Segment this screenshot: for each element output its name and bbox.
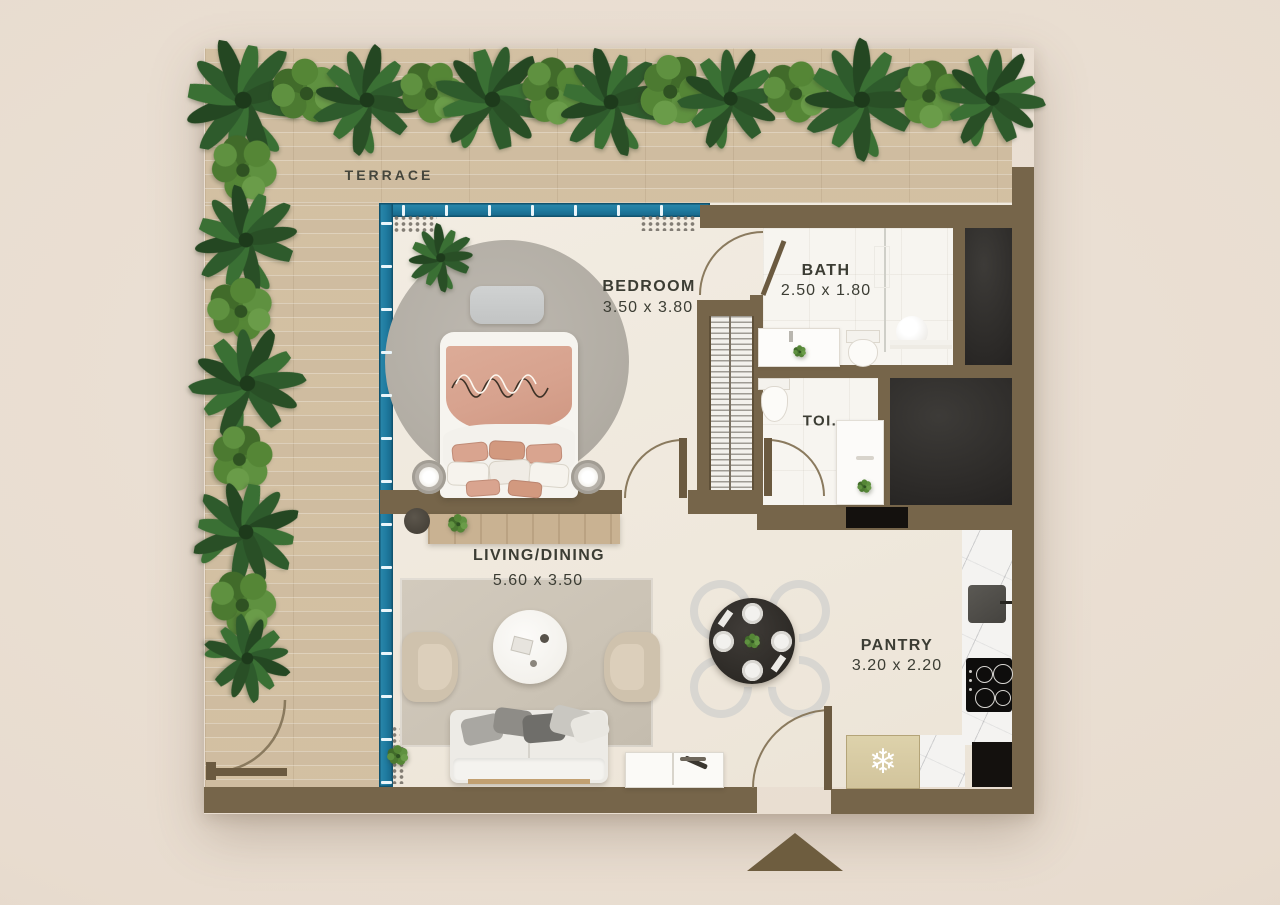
snowflake-icon: ❄ [869,745,898,779]
foot-bench [470,286,544,324]
pillow [507,479,542,498]
wall-niche [846,507,908,528]
pillow [526,443,563,464]
wall-closet-left [697,300,709,490]
tv-console-divider [672,753,674,785]
window-mullion-tick [381,652,392,655]
entrance-arrow-icon [747,833,843,871]
pantry-label: PANTRY [861,637,933,655]
appliance-black-corner [972,742,1012,787]
bath-toilet-bowl [848,339,878,367]
wall-bottom-left [204,787,757,813]
kitchen-sink [968,585,1006,623]
bath-dims: 2.50 x 1.80 [781,282,871,300]
wall-closet-top [697,300,757,316]
door-leaf-terrace [208,768,287,776]
kitchen-counter-right [962,530,1012,745]
burner [995,690,1011,706]
door-leaf-bedroom [679,438,687,498]
window-mullion-tick [488,205,491,216]
window-mullion-tick [531,205,534,216]
window-mullion-tick [445,205,448,216]
sofa-back [453,758,605,780]
wall-top [700,205,1012,228]
window-mullion-tick [660,205,663,216]
floor-plan-canvas: ❄ [0,0,1280,905]
wall-right [1012,167,1034,813]
armchair-left-cushion [418,644,452,690]
living-label: LIVING/DINING [473,547,605,565]
bedroom-label: BEDROOM [602,278,695,296]
cooktop-control [969,670,972,673]
toilet-label: TOI. [803,413,838,430]
plate [771,631,792,652]
wardrobe-divider [729,316,731,490]
window-mullion-tick [381,609,392,612]
sofa-wood-base [468,779,590,784]
cooktop-control [969,679,972,682]
vanity-faucet [789,331,793,342]
pebble-decor [640,215,696,231]
pouf [404,508,430,534]
door-hinge-terrace [206,762,216,780]
window-mullion-tick [381,265,392,268]
bed-blanket [446,346,572,430]
window-mullion-tick [381,222,392,225]
pillow [489,440,526,461]
fridge: ❄ [846,735,920,789]
window-mullion-tick [381,523,392,526]
burner [976,666,993,683]
terrace-floor-left [205,205,383,787]
shower-shelf [890,340,952,345]
lamp-glow [578,467,598,487]
wardrobe [709,316,754,490]
window-mullion-tick [381,394,392,397]
table-dish [540,634,549,643]
remote [680,757,706,761]
window-mullion-tick [381,308,392,311]
plate [742,603,763,624]
living-dims: 5.60 x 3.50 [493,572,583,590]
dark-cabinet-upper [965,222,1012,365]
window-mullion-tick [574,205,577,216]
plate [713,631,734,652]
pillow [451,441,489,464]
sideboard [428,514,620,544]
door-leaf-toilet [764,438,772,496]
tv-console [625,752,724,788]
pebble-decor [393,215,437,233]
window-mullion-tick [381,738,392,741]
shower-fixture [874,246,890,288]
burner [993,664,1013,684]
window-mullion-tick [381,351,392,354]
faucet [1000,601,1012,604]
wall-bottom-right [831,789,1034,814]
toi-basin [836,420,884,505]
bath-label: BATH [802,262,851,280]
dark-cabinet-lower [890,378,1012,505]
pillow [465,479,500,497]
window-mullion-tick [381,566,392,569]
door-leaf-entry [824,706,832,790]
window-mullion-tick [402,205,405,216]
wall-closet-bottom [688,490,763,514]
lamp-glow [419,467,439,487]
armchair-right-cushion [610,644,644,690]
burner [975,688,995,708]
bath-vanity [758,328,840,367]
window-mullion-tick [381,781,392,784]
pantry-dims: 3.20 x 2.20 [852,657,942,675]
terrace-floor-top [205,48,1012,205]
table-dish [530,660,537,667]
window-mullion-tick [381,480,392,483]
window-mullion-tick [617,205,620,216]
kitchen-counter-bottom [918,735,965,787]
bedroom-dims: 3.50 x 3.80 [603,299,693,317]
window-mullion-tick [381,695,392,698]
plate [742,660,763,681]
window-mullion-tick [381,437,392,440]
cooktop-control [969,688,972,691]
terrace-label: TERRACE [345,167,434,183]
wall-bath-dark-divider [953,222,965,365]
toi-basin-handle [856,456,874,460]
